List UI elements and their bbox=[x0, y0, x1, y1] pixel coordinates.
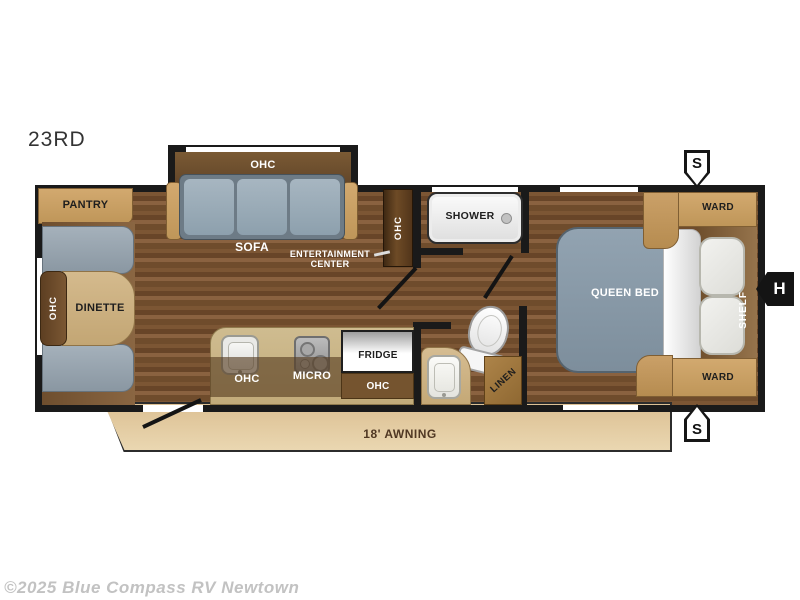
queen-bed-label: QUEEN BED bbox=[580, 286, 670, 301]
sofa bbox=[179, 174, 345, 240]
ward-bottom-side bbox=[636, 355, 673, 397]
floor-plan: 23RD 18' AWNING PANTRY OHC DINETTE OHC bbox=[0, 0, 800, 600]
fridge-label: FRIDGE bbox=[346, 347, 410, 363]
wall-kitchen-bath-stub bbox=[413, 322, 451, 329]
dinette-ohc-label: OHC bbox=[48, 296, 59, 320]
awning-label: 18' AWNING bbox=[300, 426, 500, 444]
sofa-cushion bbox=[290, 179, 340, 235]
sofa-ohc-label: OHC bbox=[230, 155, 296, 175]
copyright: ©2025 Blue Compass RV Newtown bbox=[4, 578, 299, 598]
linen-label: LINEN bbox=[488, 366, 518, 395]
window-bedroom-top bbox=[560, 187, 638, 192]
pantry-label: PANTRY bbox=[43, 196, 128, 214]
ward-bottom-label: WARD bbox=[678, 369, 758, 385]
bath-faucet bbox=[442, 393, 446, 397]
wall-kitchen-bath bbox=[413, 322, 421, 405]
speaker-badge-bottom: S bbox=[684, 404, 710, 442]
entertainment-ohc-label: OHC bbox=[393, 216, 404, 240]
sofa-cushion bbox=[237, 179, 287, 235]
micro-label: MICRO bbox=[282, 368, 342, 384]
speaker-badge-letter: S bbox=[684, 150, 710, 188]
dinette-ohc-cabinet: OHC bbox=[40, 271, 67, 346]
fridge-ohc-label: OHC bbox=[346, 378, 410, 394]
entertainment-center-cabinet: OHC bbox=[383, 189, 413, 267]
sofa-cushion bbox=[184, 179, 234, 235]
speaker-badge-letter: S bbox=[684, 404, 710, 442]
model-code: 23RD bbox=[28, 128, 86, 152]
linen-cabinet: LINEN bbox=[484, 356, 522, 405]
shower-label: SHOWER bbox=[434, 209, 506, 225]
dinette-bench-bottom bbox=[42, 344, 134, 392]
burner bbox=[300, 342, 315, 357]
dinette-bench-top bbox=[42, 226, 134, 274]
window-bedroom-bottom bbox=[563, 405, 638, 410]
shelf-panel: SHELF bbox=[734, 266, 752, 354]
wall-bath-left bbox=[413, 192, 421, 268]
bath-sink-basin bbox=[434, 363, 455, 392]
hitch-badge-letter: H bbox=[764, 279, 785, 299]
shelf-label: SHELF bbox=[738, 291, 749, 329]
wall-shower-bottom bbox=[421, 248, 463, 255]
sofa-label: SOFA bbox=[222, 240, 282, 255]
ward-top-label: WARD bbox=[678, 199, 758, 215]
entertainment-center-label: ENTERTAINMENT CENTER bbox=[284, 246, 376, 274]
bath-sink bbox=[427, 355, 461, 399]
kitchen-ohc-label: OHC bbox=[222, 371, 272, 387]
ward-top-side bbox=[643, 192, 679, 249]
dinette-label: DINETTE bbox=[68, 300, 132, 316]
speaker-badge-top: S bbox=[684, 150, 710, 188]
